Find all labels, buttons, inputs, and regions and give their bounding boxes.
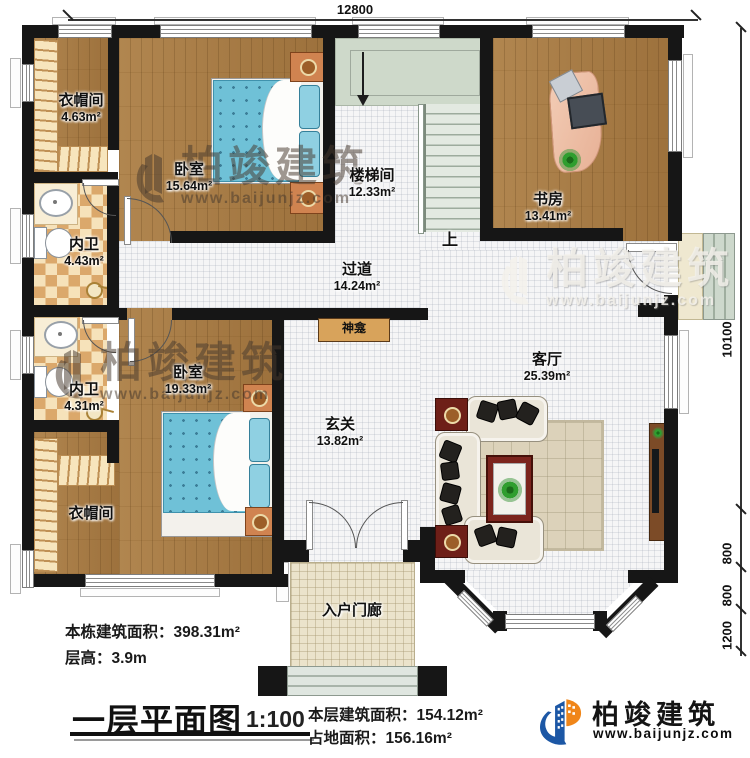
window-sill <box>80 588 220 597</box>
bed-pillow <box>249 418 270 462</box>
wall <box>22 305 118 317</box>
footprint-area: 占地面积：156.16m² <box>308 726 452 748</box>
bay-wall <box>593 611 607 631</box>
floor-area: 本层建筑面积：154.12m² <box>308 703 483 725</box>
end-table <box>435 398 468 431</box>
room-label-bathroom-2: 内卫4.31m² <box>34 381 134 413</box>
room-label-cloakroom-1: 衣帽间4.63m² <box>31 92 131 124</box>
office-chair <box>567 93 607 130</box>
stair-landing-line <box>350 50 480 96</box>
wall <box>107 420 119 463</box>
wall <box>480 38 493 241</box>
end-table-decor <box>444 407 461 424</box>
stair-direction-line <box>362 52 364 96</box>
floor-height: 层高：3.9m <box>65 646 147 668</box>
window-sill <box>683 54 693 158</box>
wall <box>323 38 335 243</box>
plant-icon <box>652 427 664 439</box>
nightstand <box>290 182 325 214</box>
stair-arrow-icon <box>357 95 369 106</box>
window-sill <box>10 330 21 380</box>
nightstand <box>290 52 325 82</box>
step-pillar <box>258 666 287 696</box>
room-label-corridor: 过道14.24m² <box>307 261 407 293</box>
shrine: 神龛 <box>318 318 390 342</box>
window <box>22 214 34 258</box>
bed-pillow <box>249 464 270 508</box>
sink-drain <box>58 332 62 336</box>
bed-pillow <box>299 131 320 177</box>
room-label-bathroom-1: 内卫4.43m² <box>34 236 134 268</box>
title-underline-thin <box>74 739 314 741</box>
window-sill <box>679 330 689 414</box>
plant-icon <box>558 148 582 172</box>
window <box>160 25 312 38</box>
dimension-right-value: 1200 <box>720 613 735 659</box>
window-sill <box>10 544 21 594</box>
dimension-right-value: 10100 <box>720 313 735 367</box>
room-label-porch: 入户门廊 <box>292 602 412 620</box>
room-label-bedroom-1: 卧室15.64m² <box>139 161 239 193</box>
dimension-right-value: 800 <box>720 533 735 575</box>
room-label-stairwell: 楼梯间12.33m² <box>322 167 422 199</box>
room-label-living: 客厅25.39m² <box>497 351 597 383</box>
bed-blanket <box>213 413 250 511</box>
bay-window <box>505 614 595 629</box>
porch-steps <box>287 666 418 696</box>
stairs-up-label: 上 <box>438 232 462 251</box>
room-label-cloakroom-2: 衣帽间 <box>41 505 141 523</box>
brand-logo-icon <box>536 690 588 750</box>
shrine-label: 神龛 <box>342 321 366 335</box>
window <box>358 25 440 38</box>
window-sill <box>10 208 21 264</box>
dimension-right-value: 800 <box>720 575 735 617</box>
sofa-cushion <box>440 461 460 481</box>
floor-plan-canvas: 神龛 柏竣建筑www.baijunjz.com 柏竣建筑www.baijunjz… <box>0 0 750 758</box>
drawing-scale: 1:100 <box>246 706 305 733</box>
room-label-hall: 玄关13.82m² <box>290 416 390 448</box>
sink <box>39 189 73 217</box>
nightstand-lamp <box>300 190 317 207</box>
end-table-decor <box>444 534 461 551</box>
window <box>664 335 678 409</box>
nightstand-lamp <box>251 390 268 407</box>
wall <box>22 420 118 432</box>
wardrobe <box>58 146 108 172</box>
dimension-top-value: 12800 <box>320 2 390 17</box>
sofa-cushion <box>495 526 518 549</box>
nightstand-lamp <box>252 514 269 531</box>
side-stoop <box>678 233 703 320</box>
side-steps <box>703 233 735 320</box>
nightstand <box>243 384 275 412</box>
window <box>58 25 112 38</box>
wall <box>272 320 284 575</box>
room-label-bedroom-2: 卧室19.33m² <box>138 364 238 396</box>
end-table <box>435 525 468 558</box>
stair-treads <box>424 104 482 232</box>
bed-blanket <box>262 80 301 180</box>
window <box>85 574 215 587</box>
window-sill <box>10 58 21 108</box>
dimension-line-top <box>68 19 698 21</box>
wall <box>480 228 623 241</box>
room-label-study: 书房13.41m² <box>498 191 598 223</box>
brand-url: www.baijunjz.com <box>593 726 734 741</box>
wall <box>638 303 668 317</box>
sink <box>44 321 78 349</box>
sink-drain <box>53 200 57 204</box>
total-building-area: 本栋建筑面积：398.31m² <box>65 620 240 642</box>
dimension-line-right <box>740 28 742 656</box>
window <box>22 550 34 588</box>
wall <box>170 231 335 243</box>
window <box>668 60 682 152</box>
step-pillar <box>418 666 447 696</box>
nightstand <box>245 507 275 536</box>
window <box>22 336 34 374</box>
tv <box>652 449 659 513</box>
window <box>532 25 625 38</box>
plant-icon <box>497 477 523 503</box>
nightstand-lamp <box>300 59 317 76</box>
bed-pillow <box>299 85 320 129</box>
